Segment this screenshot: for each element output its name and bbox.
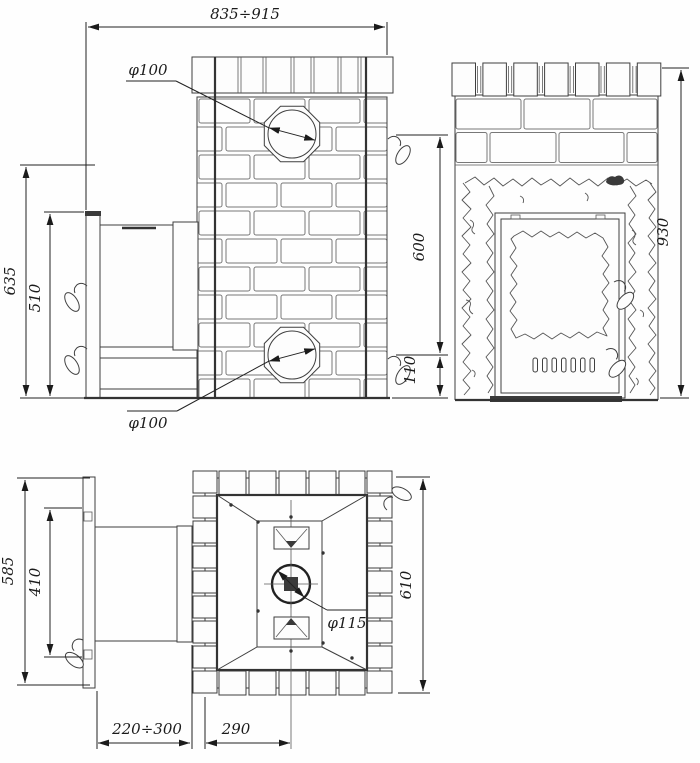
plan-tunnel [95, 526, 192, 642]
dim-total-height: 930 [654, 217, 672, 246]
fuel-tunnel-collar [173, 222, 198, 350]
stove-technical-drawing: 835÷915 635 510 600 110 φ100 φ100 [0, 0, 700, 763]
side-view: 835÷915 635 510 600 110 φ100 φ100 [1, 5, 448, 432]
door-handle-side [62, 283, 87, 313]
front-crenellation [452, 63, 661, 96]
plan-vent-lower [274, 617, 309, 639]
dim-flue-top-diameter: φ100 [128, 61, 168, 79]
dim-body-depth: 610 [397, 570, 415, 599]
damper-handle-upper [388, 136, 413, 166]
dim-flue-rear-diameter: φ100 [128, 414, 168, 432]
dim-door-unit-depth: 410 [26, 567, 44, 597]
dim-door-unit-height: 510 [26, 283, 44, 312]
dim-front-depth: 585 [0, 557, 17, 586]
dim-tunnel-length: 220÷300 [111, 720, 182, 738]
dim-chimney-diameter: φ115 [327, 614, 366, 632]
ash-handle-side [62, 346, 87, 376]
side-base-detail [100, 347, 198, 398]
plan-view: 585 410 610 φ115 220÷300 290 [0, 471, 430, 749]
plan-vent-upper [274, 527, 309, 549]
brand-logo [606, 176, 624, 186]
side-door-frame [86, 212, 100, 398]
stove-door [495, 213, 639, 398]
dim-chimney-offset: 290 [221, 720, 251, 738]
front-brick-courses [455, 99, 658, 165]
side-door-frame-cap [85, 211, 101, 216]
drawing-canvas: 835÷915 635 510 600 110 φ100 φ100 [0, 0, 700, 763]
side-top-brick-course [192, 57, 393, 93]
plan-door-frame [83, 477, 95, 688]
dim-total-width: 835÷915 [210, 5, 280, 23]
fuel-tunnel [100, 225, 173, 347]
dim-flue-bottom-offset: 110 [401, 355, 419, 384]
dim-flue-spacing: 600 [410, 232, 428, 261]
front-view: 930 [452, 63, 689, 402]
dim-front-height: 635 [1, 267, 19, 296]
